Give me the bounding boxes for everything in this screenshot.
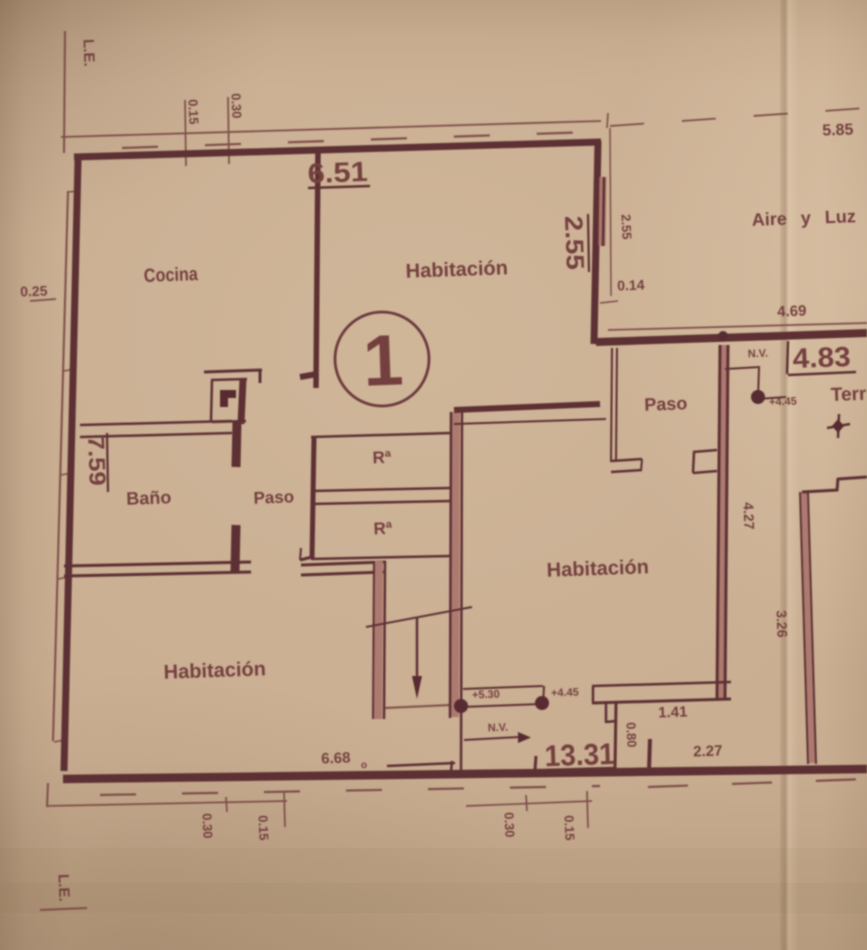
svg-text:0.30: 0.30 [229, 93, 245, 119]
svg-text:4.27: 4.27 [741, 502, 758, 530]
svg-text:Aire y Luz: Aire y Luz [751, 206, 856, 230]
svg-text:0.14: 0.14 [617, 277, 645, 294]
svg-text:Habitación: Habitación [405, 257, 508, 283]
svg-text:+4.45: +4.45 [551, 687, 579, 700]
svg-text:+4.45: +4.45 [769, 396, 797, 409]
svg-text:Rª: Rª [373, 519, 393, 539]
svg-text:5.85: 5.85 [822, 121, 854, 139]
svg-text:Paso: Paso [644, 393, 688, 414]
svg-text:Paso: Paso [253, 487, 294, 507]
svg-text:Habitación: Habitación [546, 556, 649, 582]
svg-text:0.15: 0.15 [186, 99, 202, 125]
svg-text:0.25: 0.25 [20, 283, 48, 300]
svg-text:Terr: Terr [830, 384, 867, 406]
svg-text:Rª: Rª [372, 448, 392, 468]
svg-text:6.68: 6.68 [321, 749, 351, 767]
svg-text:N.V.: N.V. [487, 722, 508, 735]
svg-text:Habitación: Habitación [163, 658, 266, 684]
svg-text:2.55: 2.55 [559, 215, 589, 270]
svg-text:L.E.: L.E. [80, 39, 98, 67]
svg-text:1: 1 [362, 320, 405, 401]
svg-text:o: o [361, 760, 367, 771]
svg-text:0.15: 0.15 [256, 815, 272, 841]
svg-text:2.27: 2.27 [693, 742, 723, 760]
svg-text:N.V.: N.V. [747, 348, 768, 361]
svg-text:0.80: 0.80 [624, 722, 640, 748]
svg-text:L.E.: L.E. [55, 874, 73, 902]
svg-text:2.55: 2.55 [619, 214, 635, 240]
svg-text:0.30: 0.30 [200, 813, 216, 839]
svg-text:3.26: 3.26 [774, 610, 791, 638]
svg-text:Baño: Baño [126, 487, 172, 509]
svg-text:0.15: 0.15 [562, 815, 578, 841]
svg-text:6.51: 6.51 [307, 156, 368, 189]
svg-text:4.83: 4.83 [792, 341, 851, 374]
svg-text:Cocina: Cocina [143, 264, 198, 287]
svg-text:1.41: 1.41 [658, 703, 688, 721]
svg-text:4.69: 4.69 [777, 302, 807, 320]
svg-text:+5.30: +5.30 [472, 689, 500, 702]
svg-text:0.30: 0.30 [502, 812, 518, 838]
